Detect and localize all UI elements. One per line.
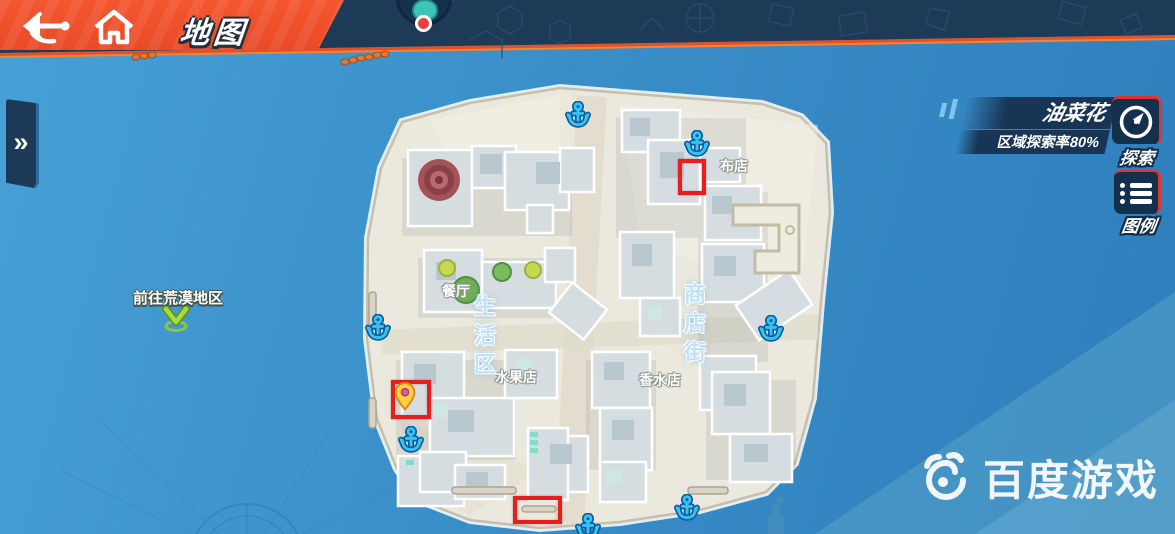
map-screen: 地图 » 油菜花 区域探索率80% 探索 图例 前往荒漠地区: [0, 0, 1175, 534]
district-label: 生活区: [467, 295, 499, 382]
anchor-marker[interactable]: [565, 101, 592, 133]
shop-label: 水果店: [495, 367, 537, 387]
shop-label: 餐厅: [442, 281, 470, 301]
anchor-marker[interactable]: [365, 314, 392, 346]
anchor-marker[interactable]: [398, 426, 425, 458]
shop-label: 布店: [720, 156, 748, 176]
anchor-marker[interactable]: [758, 315, 785, 347]
anchor-marker[interactable]: [575, 513, 602, 534]
district-label: 商店街: [677, 283, 709, 370]
location-pin[interactable]: [393, 382, 417, 417]
tutorial-highlight-box: [513, 496, 562, 524]
anchor-marker[interactable]: [684, 130, 711, 162]
tutorial-highlight-box: [678, 159, 706, 195]
map-markers: 布店餐厅水果店香水店生活区商店街: [0, 0, 1175, 534]
shop-label: 香水店: [639, 370, 681, 390]
anchor-marker[interactable]: [674, 494, 701, 526]
